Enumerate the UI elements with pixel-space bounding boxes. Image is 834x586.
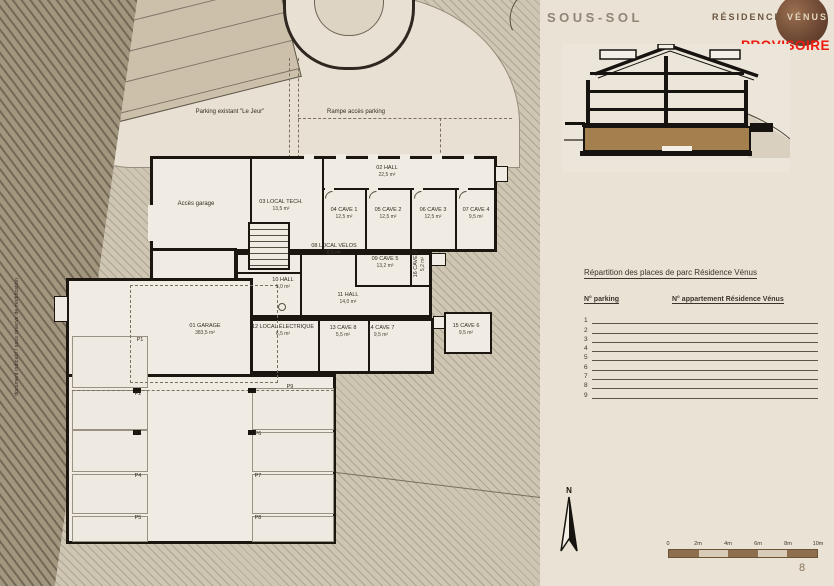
parking-table: Répartition des places de parc Résidence…: [584, 268, 818, 399]
room-label: 14 CAVE 79,5 m²: [368, 325, 395, 339]
stall-label: P8: [255, 515, 262, 521]
scale-tick-label: 8m: [784, 541, 792, 547]
table-title: Répartition des places de parc Résidence…: [584, 268, 757, 279]
stall-label: P7: [255, 473, 262, 479]
room-label: 07 CAVE 49,5 m²: [463, 207, 490, 221]
stall-label: P1: [137, 337, 144, 343]
scale-labels: 02m4m6m8m10m: [668, 541, 818, 549]
room-label: 13 CAVE 85,5 m²: [330, 325, 357, 339]
room-label: 10 HALL5,0 m²: [272, 277, 293, 291]
room-label: 03 LOCAL TECH.13,5 m²: [259, 199, 302, 213]
north-arrow-icon: [556, 495, 582, 555]
col-header-parking: N° parking: [584, 296, 619, 304]
stall-label: P5: [135, 515, 142, 521]
plan-sheet: { "header": { "plan_title": "SOUS-SOL", …: [0, 0, 834, 586]
room-label: 02 HALL22,5 m²: [376, 165, 397, 179]
room-label: 04 CAVE 112,5 m²: [331, 207, 358, 221]
stall-label: P6: [255, 431, 262, 437]
scale-segment: [699, 550, 729, 557]
scale-tick-label: 0: [666, 541, 669, 547]
sanitary-icon: [278, 303, 286, 311]
site-boundary-line: [336, 472, 540, 498]
scale-tick-label: 4m: [724, 541, 732, 547]
scale-tick-label: 10m: [813, 541, 824, 547]
page-title: SOUS-SOL: [547, 10, 643, 25]
garage-access-label: Accès garage: [178, 201, 215, 207]
disclaimer-text: document indicatif / sous réserve de mod…: [14, 278, 20, 396]
scale-tick-label: 2m: [694, 541, 702, 547]
scale-segment: [787, 550, 817, 557]
site-boundary-curve: [505, 0, 540, 44]
light-well: [495, 166, 508, 182]
road-loop-island: [314, 0, 384, 36]
ramp-dash-line: [298, 118, 512, 119]
scale-bar: 02m4m6m8m10m: [668, 541, 818, 558]
page-number: 8: [799, 562, 805, 574]
parking-existing-label: Parking existant "Le Jeur": [196, 109, 265, 115]
light-well: [433, 316, 445, 329]
light-well: [54, 296, 68, 322]
table-rows: 123456789: [584, 315, 818, 399]
room-label: 08 LOCAL VÉLOS8,5 m²: [311, 243, 356, 257]
room-label: 12 LOCAL ÉLECTRIQUE6,5 m²: [252, 324, 314, 338]
brand-name: RÉSIDENCE VÉNUS: [712, 12, 828, 22]
col-header-apartment: N° appartement Résidence Vénus: [672, 296, 784, 304]
room-label: 11 HALL14,0 m²: [338, 292, 359, 306]
scale-segment: [758, 550, 788, 557]
section-drawing: [562, 44, 790, 172]
stairwell: [248, 222, 290, 270]
stall-label: P2: [135, 391, 142, 397]
scale-segment: [728, 550, 758, 557]
access-corridor: [150, 248, 237, 282]
scale-tick-label: 6m: [754, 541, 762, 547]
room-label: 05 CAVE 212,5 m²: [375, 207, 402, 221]
ramp-dash-line: [298, 58, 299, 158]
stall-label: P9: [287, 384, 294, 390]
room-label: 06 CAVE 312,5 m²: [420, 207, 447, 221]
room-label: 15 CAVE 69,5 m²: [453, 323, 480, 337]
section-svg: [562, 44, 790, 172]
room-label: 09 CAVE 513,2 m²: [372, 256, 399, 270]
site-plan-area: Parking existant "Le Jeur" Rampe accès p…: [0, 0, 540, 586]
scale-segment: [669, 550, 699, 557]
stall-label: P4: [135, 473, 142, 479]
ramp-dash-line: [289, 58, 290, 158]
scale-segments: [668, 549, 818, 558]
ramp-label: Rampe accès parking: [327, 109, 385, 115]
north-arrow: N: [556, 486, 582, 560]
fill-in-line: [592, 388, 818, 398]
room-label: 16 CAVE 95,2 m²: [413, 251, 427, 278]
table-row: 9: [584, 389, 818, 398]
room-label: 01 GARAGE383,5 m²: [189, 323, 220, 337]
ramp-dash-line: [440, 118, 441, 158]
north-label: N: [556, 486, 582, 495]
stall-label: P3: [135, 431, 142, 437]
light-well: [431, 253, 446, 266]
